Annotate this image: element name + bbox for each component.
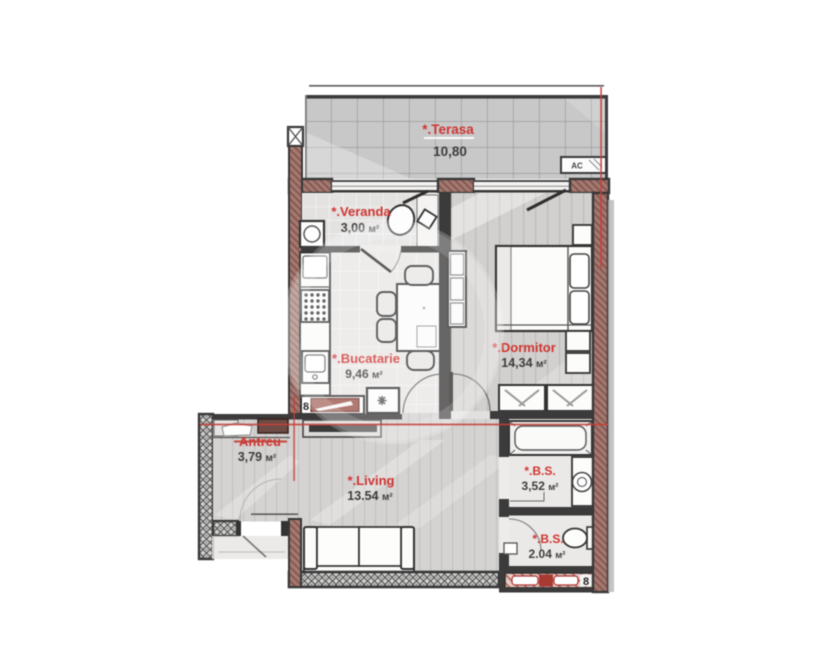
svg-text:10,80: 10,80 — [433, 144, 467, 159]
svg-text:*.Terasa: *.Terasa — [422, 122, 474, 137]
svg-text:8: 8 — [583, 576, 589, 588]
svg-text:3,52 м²: 3,52 м² — [522, 479, 559, 493]
svg-text:13.54 м²: 13.54 м² — [347, 489, 393, 503]
svg-text:*.B.S.: *.B.S. — [532, 532, 563, 546]
svg-text:14,34 м²: 14,34 м² — [501, 356, 547, 370]
svg-text:*.Veranda: *.Veranda — [331, 204, 391, 219]
svg-text:2.04 м²: 2.04 м² — [529, 547, 566, 561]
svg-text:*.B.S.: *.B.S. — [524, 464, 555, 478]
svg-text:3,79 м²: 3,79 м² — [238, 450, 277, 464]
svg-text:*.Living: *.Living — [348, 473, 395, 488]
svg-text:AC: AC — [571, 162, 583, 171]
